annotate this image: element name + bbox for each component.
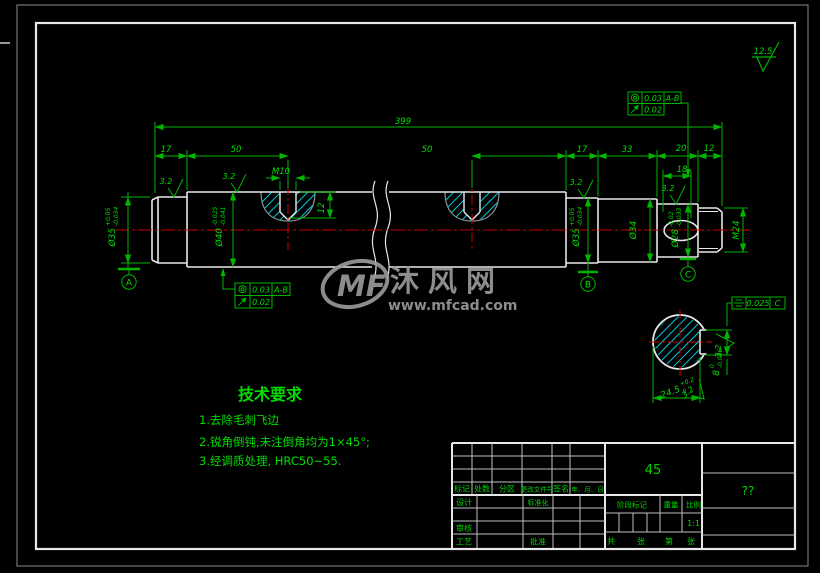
tb-header-change-doc: 更改文件号: [521, 485, 554, 494]
cad-sheet: 399 17 50 50 17 33 20 12 18 M10 12 Ø34 M…: [0, 0, 820, 573]
tb-sheet-unit: 张: [637, 537, 645, 546]
roughness-value: 3.2: [662, 184, 675, 193]
tb-header-count: 处数: [474, 484, 490, 494]
dim-dia35-left: Ø35 +0.05 -0.034: [105, 206, 120, 247]
gdt-datum-ref: C: [775, 299, 781, 308]
centerlines: [115, 166, 750, 250]
svg-text:-0.025: -0.025: [212, 206, 219, 226]
tb-material: 45: [645, 463, 662, 478]
roughness-value: 3.2: [223, 172, 236, 181]
dim-17-left: 17: [161, 145, 172, 155]
svg-text:Ø40: Ø40: [214, 228, 225, 248]
svg-text:-0.033: -0.033: [676, 207, 683, 227]
tech-requirements-title: 技术要求: [238, 385, 303, 404]
concentricity-icon: [631, 94, 638, 101]
tb-scale-label: 比例: [686, 500, 701, 510]
svg-text:-0.041: -0.041: [220, 207, 227, 226]
svg-text:-0.034: -0.034: [113, 206, 120, 226]
circular-runout-icon: [631, 105, 639, 113]
dim-hole-depth: 12: [317, 203, 327, 214]
tb-weight-label: 重量: [664, 501, 679, 510]
dim-12: 12: [704, 144, 715, 154]
svg-text:+0.05: +0.05: [569, 207, 576, 226]
concentricity-icon: [241, 288, 244, 291]
dim-dia28: Ø28 -0.02 -0.033: [668, 207, 683, 248]
gdt-value: 0.02: [644, 106, 662, 115]
watermark: MF 沐风网 www.mfcad.com: [317, 254, 517, 314]
tb-drawing-title: ??: [742, 484, 755, 498]
gdt-frame-right-text: 0.03 A-B 0.02: [644, 94, 679, 115]
dim-17-right: 17: [577, 145, 588, 155]
dimension-texts: 399 17 50 50 17 33 20 12 18 M10 12 Ø34 M…: [161, 117, 742, 240]
dim-m24: M24: [732, 220, 742, 239]
cad-drawing-canvas: 399 17 50 50 17 33 20 12 18 M10 12 Ø34 M…: [0, 0, 820, 573]
datum-a-label: A: [126, 279, 133, 289]
tb-role-approve: 批准: [530, 537, 546, 547]
watermark-url: www.mfcad.com: [388, 298, 518, 314]
dim-20: 20: [676, 144, 687, 154]
circular-runout-icon: [239, 298, 247, 306]
gdt-value: 0.03: [644, 94, 662, 103]
concentricity-icon: [239, 286, 246, 293]
svg-text:Ø35: Ø35: [107, 228, 118, 248]
svg-text:+0.05: +0.05: [105, 207, 112, 226]
watermark-name: 沐风网: [390, 264, 504, 298]
tb-header-date: 年、月、日: [571, 485, 604, 494]
dim-50-left: 50: [231, 145, 242, 155]
tb-role-standardization: 标准化: [528, 498, 549, 507]
dim-50-right: 50: [422, 145, 433, 155]
symmetry-icon: [734, 300, 744, 306]
dim-overall: 399: [395, 117, 411, 127]
tb-stage-label: 阶段标记: [617, 500, 647, 510]
dim-dia35-right: Ø35 +0.05 -0.034: [569, 206, 584, 247]
datum-c-label: C: [685, 271, 691, 281]
gdt-value: 0.03: [252, 286, 270, 295]
surface-finish-symbols: [168, 42, 779, 403]
svg-text:24.5: 24.5: [659, 385, 682, 401]
roughness-value: 3.2: [714, 345, 723, 358]
roughness-value: 3.2: [160, 177, 173, 186]
general-roughness-value: 12.5: [754, 47, 773, 57]
gdt-value: 0.025: [747, 299, 770, 308]
tb-sheet-total: 共: [607, 537, 615, 546]
dim-dia34: Ø34: [628, 220, 639, 240]
roughness-value: 3.2: [570, 178, 583, 187]
svg-text:Ø28: Ø28: [670, 229, 681, 249]
tb-header-zone: 分区: [499, 485, 515, 494]
tech-requirement-item: 1.去除毛刺飞边: [199, 413, 279, 427]
tb-sheet-unit: 张: [687, 537, 695, 546]
tb-role-review: 审核: [456, 523, 472, 533]
gdt-datum-ref: A-B: [665, 94, 680, 103]
gdt-frame-left-text: 0.03 A-B 0.02: [252, 286, 288, 308]
gdt-datum-ref: A-B: [273, 286, 288, 295]
tb-scale-value: 1:1: [687, 519, 700, 528]
dim-m10: M10: [272, 167, 290, 177]
svg-text:-0.034: -0.034: [577, 206, 584, 226]
tb-sheet-no: 第: [665, 536, 673, 546]
tech-requirement-item: 3.经调质处理, HRC50~55.: [199, 454, 341, 468]
gdt-frame-section-text: 0.025 C: [747, 299, 781, 308]
dim-33: 33: [622, 145, 633, 155]
dim-dia40: Ø40 -0.025 -0.041: [212, 206, 227, 247]
mf-logo-text: MF: [337, 269, 386, 303]
title-block: 标记 处数 分区 更改文件号 签名 年、月、日 设计 标准化 审核 工艺 批准 …: [452, 443, 795, 549]
svg-text:0: 0: [709, 364, 716, 368]
tech-requirements: 技术要求 1.去除毛刺飞边 2.锐角倒钝,未注倒角均为1×45°; 3.经调质处…: [199, 385, 370, 468]
section-centerlines: [649, 309, 712, 376]
gdt-value: 0.02: [252, 298, 270, 307]
datum-b-label: B: [585, 281, 591, 291]
svg-text:-0.02: -0.02: [668, 211, 675, 227]
tech-requirement-item: 2.锐角倒钝,未注倒角均为1×45°;: [199, 435, 370, 449]
tb-role-process: 工艺: [456, 538, 472, 547]
tb-role-design: 设计: [456, 497, 472, 507]
tb-header-signature: 签名: [553, 484, 569, 494]
tb-header-mark: 标记: [454, 484, 470, 494]
concentricity-icon: [634, 96, 637, 99]
svg-text:Ø35: Ø35: [571, 228, 582, 248]
svg-text:8: 8: [712, 370, 722, 376]
